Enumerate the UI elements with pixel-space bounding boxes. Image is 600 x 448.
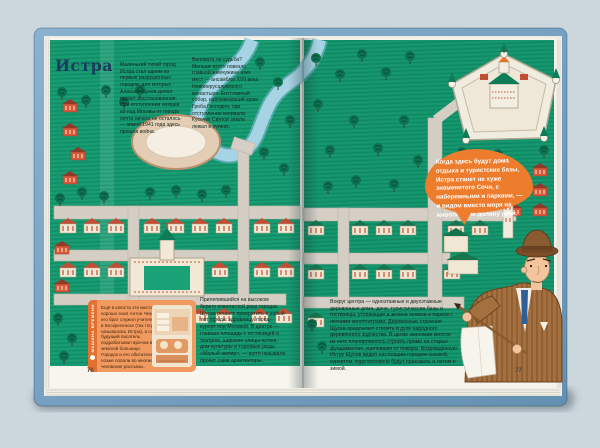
face — [525, 254, 550, 283]
rubric-strip: МАШИНА ВРЕМЕНИ — [88, 300, 97, 372]
plan-paragraph: Прилепившийся на высоком берегу извилист… — [200, 297, 286, 365]
rubric-label: МАШИНА ВРЕМЕНИ — [90, 304, 95, 352]
tie — [521, 290, 528, 324]
history-info-box: МАШИНА ВРЕМЕНИ Ещё в юности эти места хо… — [88, 300, 196, 372]
left-hand — [462, 312, 471, 321]
speech-bubble-text: Когда здесь будут дома отдыха и туристск… — [436, 157, 523, 218]
info-box-illustration — [152, 305, 192, 367]
left-page-number: 76 — [87, 368, 94, 374]
clock-icon — [90, 355, 95, 360]
right-page-number: 77 — [515, 368, 522, 374]
photo-of-open-book: Истра Маленький тихий город Истра стал о… — [0, 0, 600, 448]
info-box-text: Ещё в юности эти места хорошо знал Антон… — [101, 305, 158, 370]
page-title: Истра — [55, 56, 113, 75]
body-paragraph: Вокруг центра — одноэтажные и двухэтажны… — [330, 299, 457, 372]
right-hand — [512, 344, 521, 353]
intro-paragraph-1: Маленький тихий город Истра стал одним и… — [120, 62, 186, 136]
intro-paragraph-2: Виновата ли судьба? Меньше всего повезло… — [192, 57, 260, 131]
